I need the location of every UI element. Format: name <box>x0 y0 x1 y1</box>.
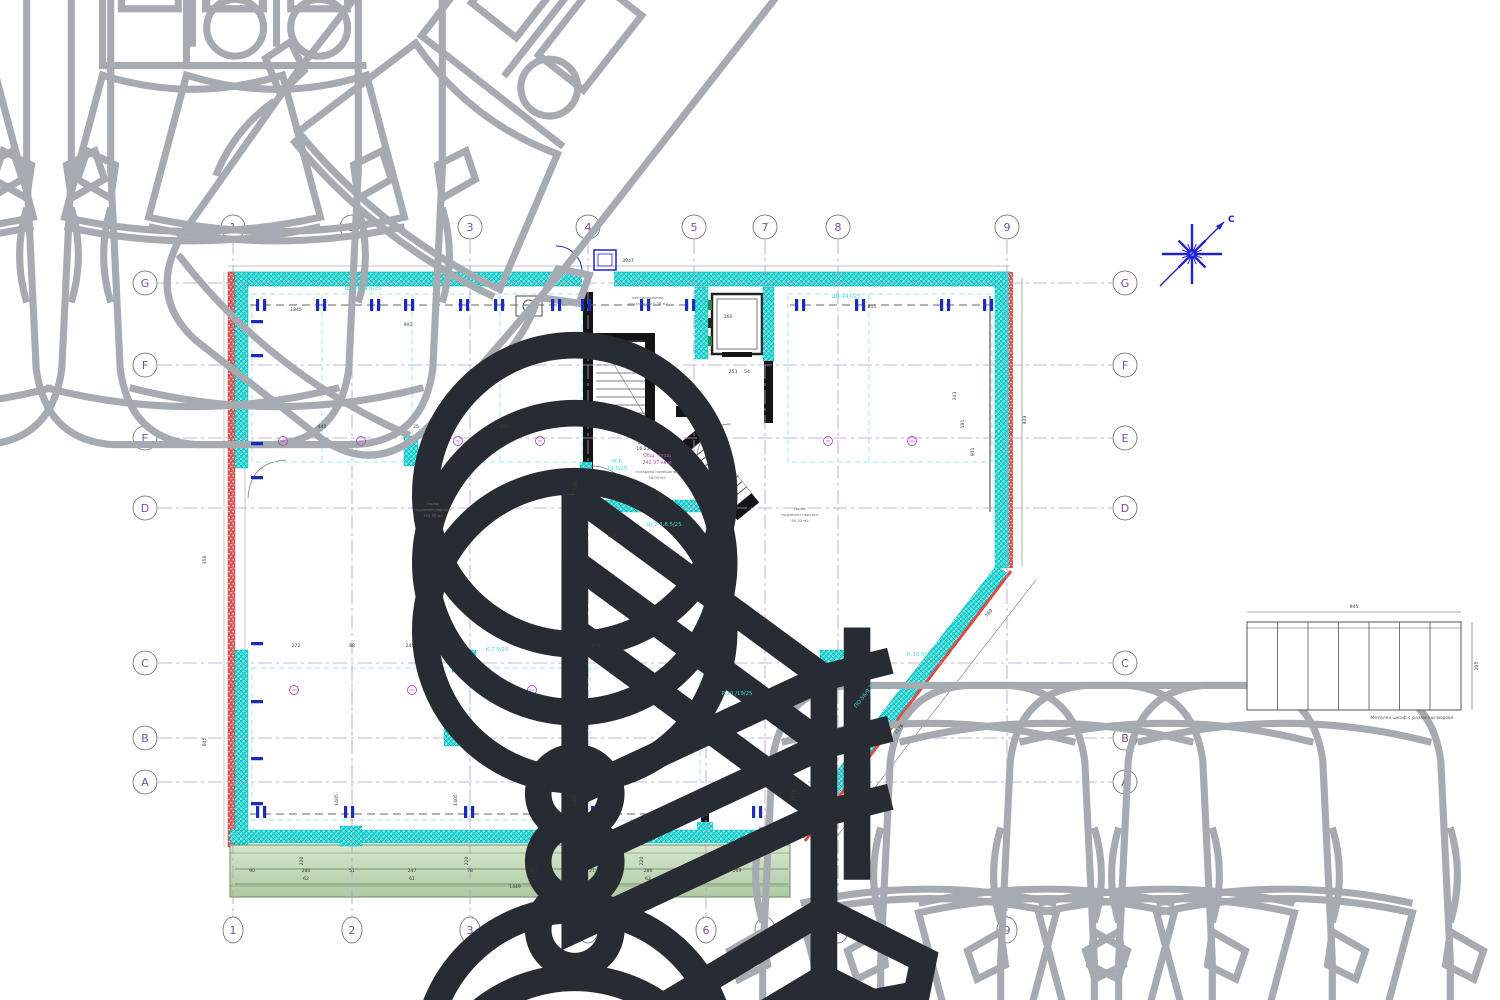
cyan-code-label: Ш.8-М.9.5/25 <box>345 286 381 292</box>
parking-tick <box>983 299 986 311</box>
parking-tick <box>256 806 259 818</box>
parking-tick <box>263 299 266 311</box>
parking-tick <box>344 806 347 818</box>
room-label: 192.32 м2 <box>423 513 443 518</box>
dim-label: 62 <box>530 876 536 882</box>
room-label: инсталация 5.38 м2 <box>628 301 668 306</box>
area-label: Общ. площ <box>643 453 671 459</box>
dim-label: 61 <box>409 876 415 882</box>
parking-tick <box>251 354 263 357</box>
parking-tick <box>558 299 561 311</box>
dim-label: 220 <box>464 857 470 866</box>
parking-tick <box>251 442 263 445</box>
parking-tick <box>370 299 373 311</box>
dim-label: 88 <box>459 643 465 649</box>
parking-tick <box>501 299 504 311</box>
bike-rack-caption: Метален шкаф с различни видове <box>1370 715 1453 721</box>
room-label: гараж <box>794 506 807 511</box>
cyan-code-label: К.10 5/25 <box>907 652 933 658</box>
dim-label: 220 <box>639 857 645 866</box>
grid-bubble-label-3: 3 <box>467 221 474 234</box>
grid-bubble-label-G: G <box>141 277 150 290</box>
bike-rack-height-dim: 295 <box>1474 662 1480 671</box>
parking-tick <box>685 299 688 311</box>
dim-label: 272 <box>292 643 301 649</box>
parking-tick <box>947 299 950 311</box>
dim-label: 769 <box>984 608 994 619</box>
dim-label: 62 <box>645 876 651 882</box>
dim-label: 54 <box>744 369 750 375</box>
dim-label: 78 <box>467 868 473 874</box>
cyan-code-label: 19.5/25 <box>607 466 628 472</box>
dim-label: 90 <box>249 868 255 874</box>
left-wall-lower <box>235 650 248 847</box>
grid-bubble-label-1: 1 <box>230 924 237 937</box>
grid-bubble-label-C: C <box>1121 657 1129 670</box>
dim-label: 929 <box>1022 416 1028 425</box>
parking-tick <box>351 806 354 818</box>
grid-bubble-label-9: 9 <box>1004 221 1011 234</box>
dim-label: 25 <box>413 424 419 430</box>
parking-tick <box>940 299 943 311</box>
grid-bubble-label-C: C <box>141 657 149 670</box>
parking-tick <box>692 299 695 311</box>
dim-label: 343 <box>952 392 958 401</box>
dim-label: 440 <box>318 424 327 430</box>
bike-shelter-detail: 945 295 Метален шкаф с различни видове <box>1247 604 1480 721</box>
right-wall-exterior <box>1009 272 1013 568</box>
dim-label: 901 <box>970 448 976 457</box>
dim-label: 247 <box>408 868 417 874</box>
parking-tick <box>581 299 584 311</box>
parking-tick <box>251 642 263 645</box>
corner-column <box>697 822 713 843</box>
top-wall <box>228 272 1010 286</box>
parking-tick <box>251 757 263 760</box>
cyan-code-label: М.6 <box>612 459 622 465</box>
parking-tick <box>795 299 798 311</box>
parking-tick <box>759 806 762 818</box>
parking-tick <box>404 299 407 311</box>
grid-bubble-label-7: 7 <box>762 221 769 234</box>
cyan-code-label: Р.10 /19/25 <box>722 691 753 697</box>
dim-label: 347 <box>529 868 538 874</box>
parking-tick <box>494 299 497 311</box>
cyan-code-label: ЦО-147/25 <box>831 294 860 300</box>
dim-label: 88 <box>349 643 355 649</box>
parking-tick <box>251 802 263 805</box>
parking-tick <box>802 299 805 311</box>
dim-label: 1449 <box>509 884 521 890</box>
elevator-west-wall <box>695 287 708 359</box>
room-label: вентилационна <box>632 295 663 300</box>
parking-tick <box>855 299 858 311</box>
dim-label: 3047 <box>622 258 634 264</box>
dim-label: 1405 <box>453 794 459 806</box>
grid-bubble-label-5: 5 <box>691 221 698 234</box>
dim-label: 269 <box>733 868 742 874</box>
parking-tick <box>588 299 591 311</box>
parking-tick <box>256 299 259 311</box>
parking-tick <box>466 299 469 311</box>
dim-label: 280 <box>302 868 311 874</box>
parking-tick <box>323 299 326 311</box>
cyan-code-label: Ш.2-3.8.5/25 <box>646 522 681 528</box>
grid-bubble-label-2: 2 <box>349 924 356 937</box>
dim-label: 508 <box>573 482 579 491</box>
north-arrow <box>1160 222 1224 286</box>
dim-label: 440 <box>500 424 509 430</box>
grid-bubble-label-6: 6 <box>703 924 710 937</box>
dim-label: 280 <box>644 868 653 874</box>
dim-label: 1405 <box>572 794 578 806</box>
dim-label: 220 <box>299 857 305 866</box>
dim-label: 356 <box>202 556 208 565</box>
elevator-sill <box>722 352 752 357</box>
dim-label: 253 <box>729 369 738 375</box>
room-label: 90.32 м2 <box>791 518 809 523</box>
entry-door-panel <box>598 254 612 266</box>
grid-bubble-label-B: B <box>141 732 149 745</box>
left-wall-exterior <box>228 272 235 847</box>
parking-tick <box>263 806 266 818</box>
grid-bubble-label-G: G <box>1121 277 1130 290</box>
dim-label: 160 <box>724 314 733 320</box>
dim-label: 191 <box>960 420 966 429</box>
bike-rack-width-dim: 945 <box>1350 604 1359 610</box>
dim-label: 811 <box>868 304 877 310</box>
entry-door <box>594 250 616 270</box>
grid-bubble-label-B: B <box>1121 732 1129 745</box>
north-letter: С <box>1228 215 1235 225</box>
area-label: 242.97 кв.м <box>642 460 672 466</box>
parking-tick <box>464 806 467 818</box>
grid-bubble-label-F: F <box>142 359 148 372</box>
grid-bubble-label-E: E <box>1122 432 1129 445</box>
parking-tick <box>251 476 263 479</box>
dim-label: 21 <box>589 868 595 874</box>
room-label: 16.00 м2 <box>648 475 666 480</box>
dim-label: 1174 <box>791 789 797 801</box>
column <box>340 826 362 846</box>
parking-tick <box>316 299 319 311</box>
grid-bubble-label-8: 8 <box>835 221 842 234</box>
cyan-code-label: К.7 5/25 <box>486 647 509 653</box>
room-label: складово помещение <box>635 469 679 474</box>
parking-tick <box>377 299 380 311</box>
grid-bubble-label-D: D <box>1121 502 1129 515</box>
dim-label: 605 <box>202 738 208 747</box>
parking-tick <box>251 320 263 323</box>
room-label: подземен паркинг <box>414 507 451 512</box>
grid-bubble-label-D: D <box>141 502 149 515</box>
floor-plan-canvas: GGFFEEDDCCBBAA1122334456778899 Ш.8-М.9.5… <box>0 0 1500 1000</box>
dim-label: 901 <box>404 322 413 328</box>
parking-tick <box>990 299 993 311</box>
dim-label: 2.45 <box>638 440 648 446</box>
dim-label: 1405 <box>334 794 340 806</box>
elevator-shaft <box>712 294 762 354</box>
dim-label: 240 <box>406 643 415 649</box>
grid-bubble-label-A: A <box>141 776 149 789</box>
parking-tick <box>459 299 462 311</box>
dim-label: 249 <box>658 495 667 501</box>
dim-label: 808 <box>608 533 617 539</box>
parking-zone <box>788 294 992 462</box>
parking-tick <box>551 299 554 311</box>
parking-tick <box>251 700 263 703</box>
dim-label: 51 <box>349 868 355 874</box>
dim-label: 878 <box>592 643 601 649</box>
dim-label: 16.23 <box>636 446 649 452</box>
room-label: подземен паркинг <box>781 512 818 517</box>
parking-tick <box>752 806 755 818</box>
parking-tick <box>471 806 474 818</box>
parking-tick <box>411 299 414 311</box>
plan-drawing: GGFFEEDDCCBBAA1122334456778899 Ш.8-М.9.5… <box>0 0 1500 1000</box>
grid-bubble-label-F: F <box>1122 359 1128 372</box>
room-label: гараж <box>427 501 440 506</box>
dim-label: 62 <box>303 876 309 882</box>
bike-shelter-box <box>1247 622 1461 710</box>
parking-tick <box>862 299 865 311</box>
dim-label: 1845 <box>290 307 302 313</box>
